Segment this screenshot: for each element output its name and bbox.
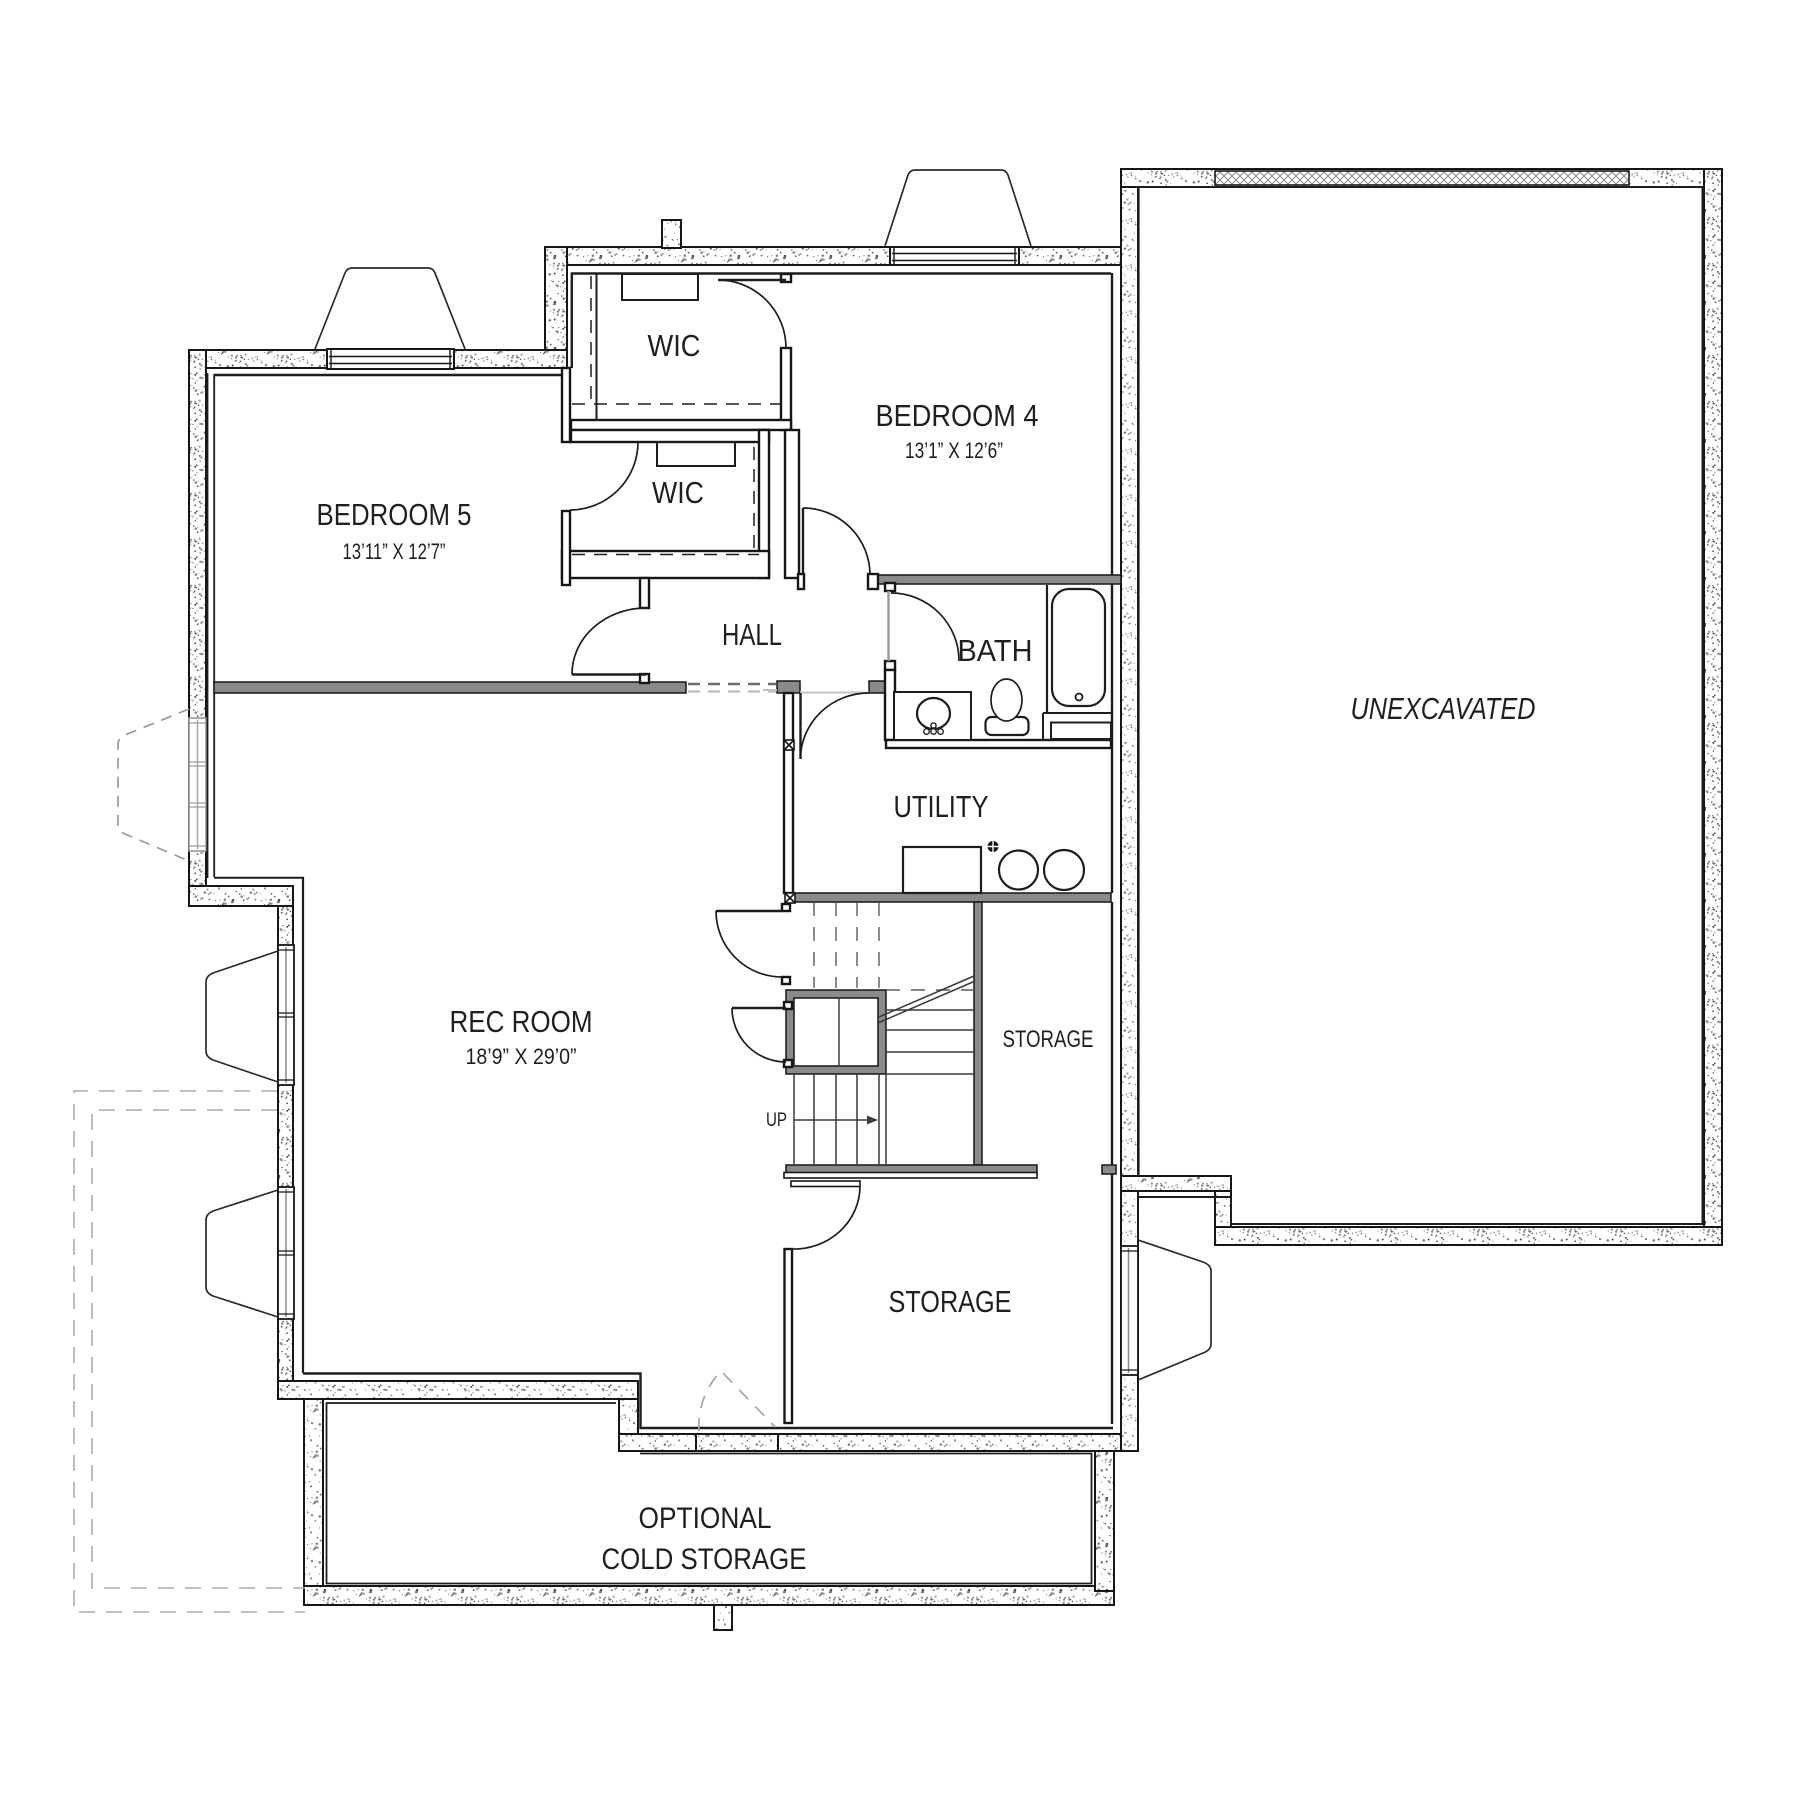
svg-text:STORAGE: STORAGE [1003, 1026, 1094, 1053]
svg-text:UNEXCAVATED: UNEXCAVATED [1351, 691, 1536, 726]
svg-text:HALL: HALL [722, 617, 782, 652]
svg-text:STORAGE: STORAGE [889, 1284, 1012, 1319]
svg-text:UTILITY: UTILITY [894, 789, 989, 824]
svg-text:BEDROOM 5: BEDROOM 5 [317, 497, 472, 532]
svg-text:COLD STORAGE: COLD STORAGE [602, 1543, 807, 1576]
svg-text:UP: UP [766, 1110, 787, 1131]
svg-text:18’9” X 29’0”: 18’9” X 29’0” [466, 1044, 577, 1069]
svg-text:REC ROOM: REC ROOM [450, 1004, 593, 1039]
svg-text:13’1” X 12’6”: 13’1” X 12’6” [905, 438, 1003, 463]
svg-text:BEDROOM 4: BEDROOM 4 [876, 398, 1039, 433]
svg-text:WIC: WIC [648, 328, 701, 363]
svg-text:BATH: BATH [958, 633, 1033, 668]
svg-text:13’11” X 12’7”: 13’11” X 12’7” [343, 539, 446, 564]
svg-text:OPTIONAL: OPTIONAL [639, 1502, 772, 1535]
svg-text:WIC: WIC [652, 475, 704, 510]
